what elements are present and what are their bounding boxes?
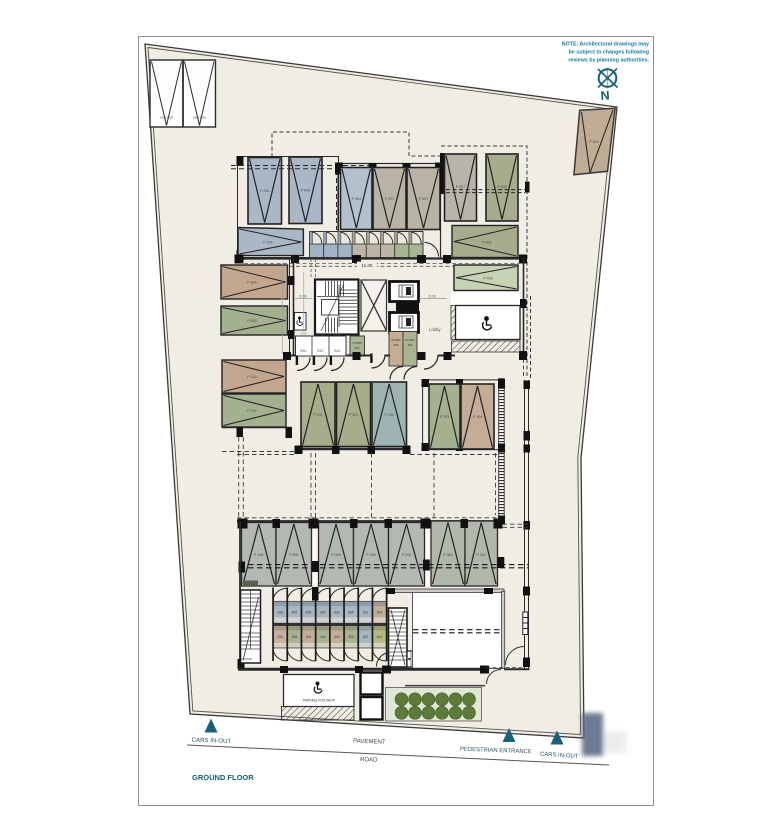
svg-text:P 005: P 005 (331, 553, 340, 557)
svg-text:P 803: P 803 (247, 319, 256, 323)
svg-text:P 302: P 302 (443, 553, 452, 557)
svg-text:P 105: P 105 (254, 553, 263, 557)
svg-text:P 101: P 101 (313, 413, 322, 417)
svg-text:PARKING FOR SHOP: PARKING FOR SHOP (303, 699, 335, 703)
svg-text:P 405: P 405 (497, 185, 506, 189)
svg-text:406: 406 (320, 635, 326, 639)
svg-text:STORA: STORA (391, 338, 401, 342)
svg-text:2.00: 2.00 (299, 295, 306, 299)
svg-text:P 605: P 605 (289, 553, 298, 557)
svg-text:405: 405 (291, 611, 297, 615)
svg-text:504: 504 (377, 611, 383, 615)
svg-text:P 104: P 104 (473, 415, 482, 419)
svg-text:102: 102 (362, 611, 368, 615)
svg-text:P 404: P 404 (352, 197, 361, 201)
svg-text:1.40: 1.40 (318, 332, 324, 336)
svg-text:304: 304 (355, 346, 360, 350)
svg-text:P 002: P 002 (402, 553, 411, 557)
svg-text:PAVEMENT: PAVEMENT (353, 738, 386, 746)
svg-text:306: 306 (320, 611, 326, 615)
svg-text:106: 106 (277, 611, 283, 615)
svg-text:P 606: P 606 (301, 189, 310, 193)
svg-text:2.00: 2.00 (428, 295, 435, 299)
svg-text:VISITOR: VISITOR (160, 116, 174, 120)
svg-text:P 306: P 306 (263, 241, 272, 245)
svg-text:1.20: 1.20 (335, 332, 341, 336)
svg-text:P 407: P 407 (456, 185, 465, 189)
svg-text:P 202: P 202 (477, 553, 486, 557)
svg-text:P 305: P 305 (366, 553, 375, 557)
svg-text:GROUND FLOOR: GROUND FLOOR (192, 773, 254, 782)
svg-text:RAC: RAC (334, 349, 341, 353)
svg-text:NOTE: Architectural drawings m: NOTE: Architectural drawings may (562, 42, 649, 48)
svg-text:404: 404 (334, 635, 340, 639)
svg-text:102: 102 (362, 635, 368, 639)
svg-text:STORA: STORA (405, 338, 415, 342)
svg-text:P 204: P 204 (247, 375, 256, 379)
svg-text:P 206: P 206 (260, 189, 269, 193)
svg-text:P 604: P 604 (589, 140, 598, 144)
svg-text:206: 206 (277, 635, 283, 639)
svg-text:be subject to changes followin: be subject to changes following (569, 50, 649, 56)
svg-text:304: 304 (306, 635, 312, 639)
svg-text:ROAD: ROAD (360, 757, 378, 764)
svg-text:reviews by planning authoritie: reviews by planning authorities. (568, 58, 649, 64)
svg-text:P 103: P 103 (440, 415, 449, 419)
svg-text:RAC: RAC (317, 349, 324, 353)
svg-text:306: 306 (408, 343, 413, 347)
svg-text:Lobby: Lobby (429, 327, 441, 332)
svg-text:505: 505 (348, 611, 354, 615)
svg-text:306: 306 (291, 635, 297, 639)
svg-text:P 102: P 102 (385, 413, 394, 417)
svg-text:P 507: P 507 (419, 197, 428, 201)
svg-text:305: 305 (394, 343, 399, 347)
svg-text:P 201: P 201 (349, 413, 358, 417)
svg-text:P 207: P 207 (385, 197, 394, 201)
svg-text:P 203: P 203 (247, 409, 256, 413)
svg-text:305: 305 (348, 635, 354, 639)
svg-text:N: N (600, 88, 610, 103)
svg-text:605: 605 (306, 611, 312, 615)
svg-text:RAC: RAC (300, 349, 307, 353)
svg-text:P 804: P 804 (247, 281, 256, 285)
svg-text:11.05: 11.05 (361, 263, 373, 268)
svg-text:VISITOR: VISITOR (193, 116, 207, 120)
svg-text:602: 602 (334, 611, 340, 615)
svg-text:P 403: P 403 (483, 277, 492, 281)
svg-text:P 601: P 601 (482, 241, 491, 245)
svg-text:401: 401 (377, 635, 383, 639)
svg-text:STORA: STORA (352, 341, 362, 345)
